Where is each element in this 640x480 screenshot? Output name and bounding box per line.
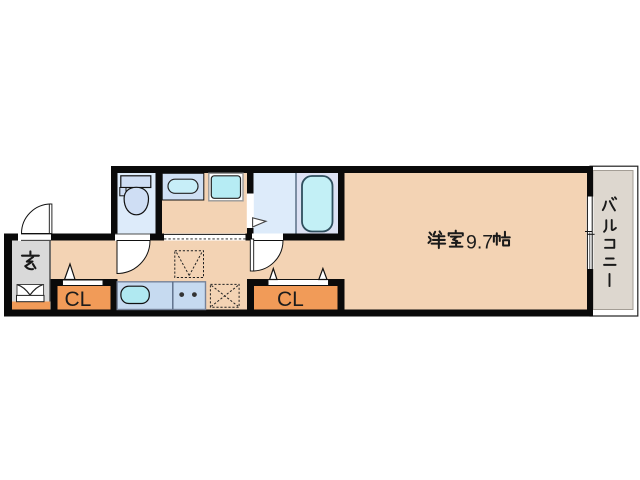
svg-text:CL: CL [65,288,92,311]
svg-text:CL: CL [277,288,304,311]
svg-text:9.7: 9.7 [466,231,493,253]
